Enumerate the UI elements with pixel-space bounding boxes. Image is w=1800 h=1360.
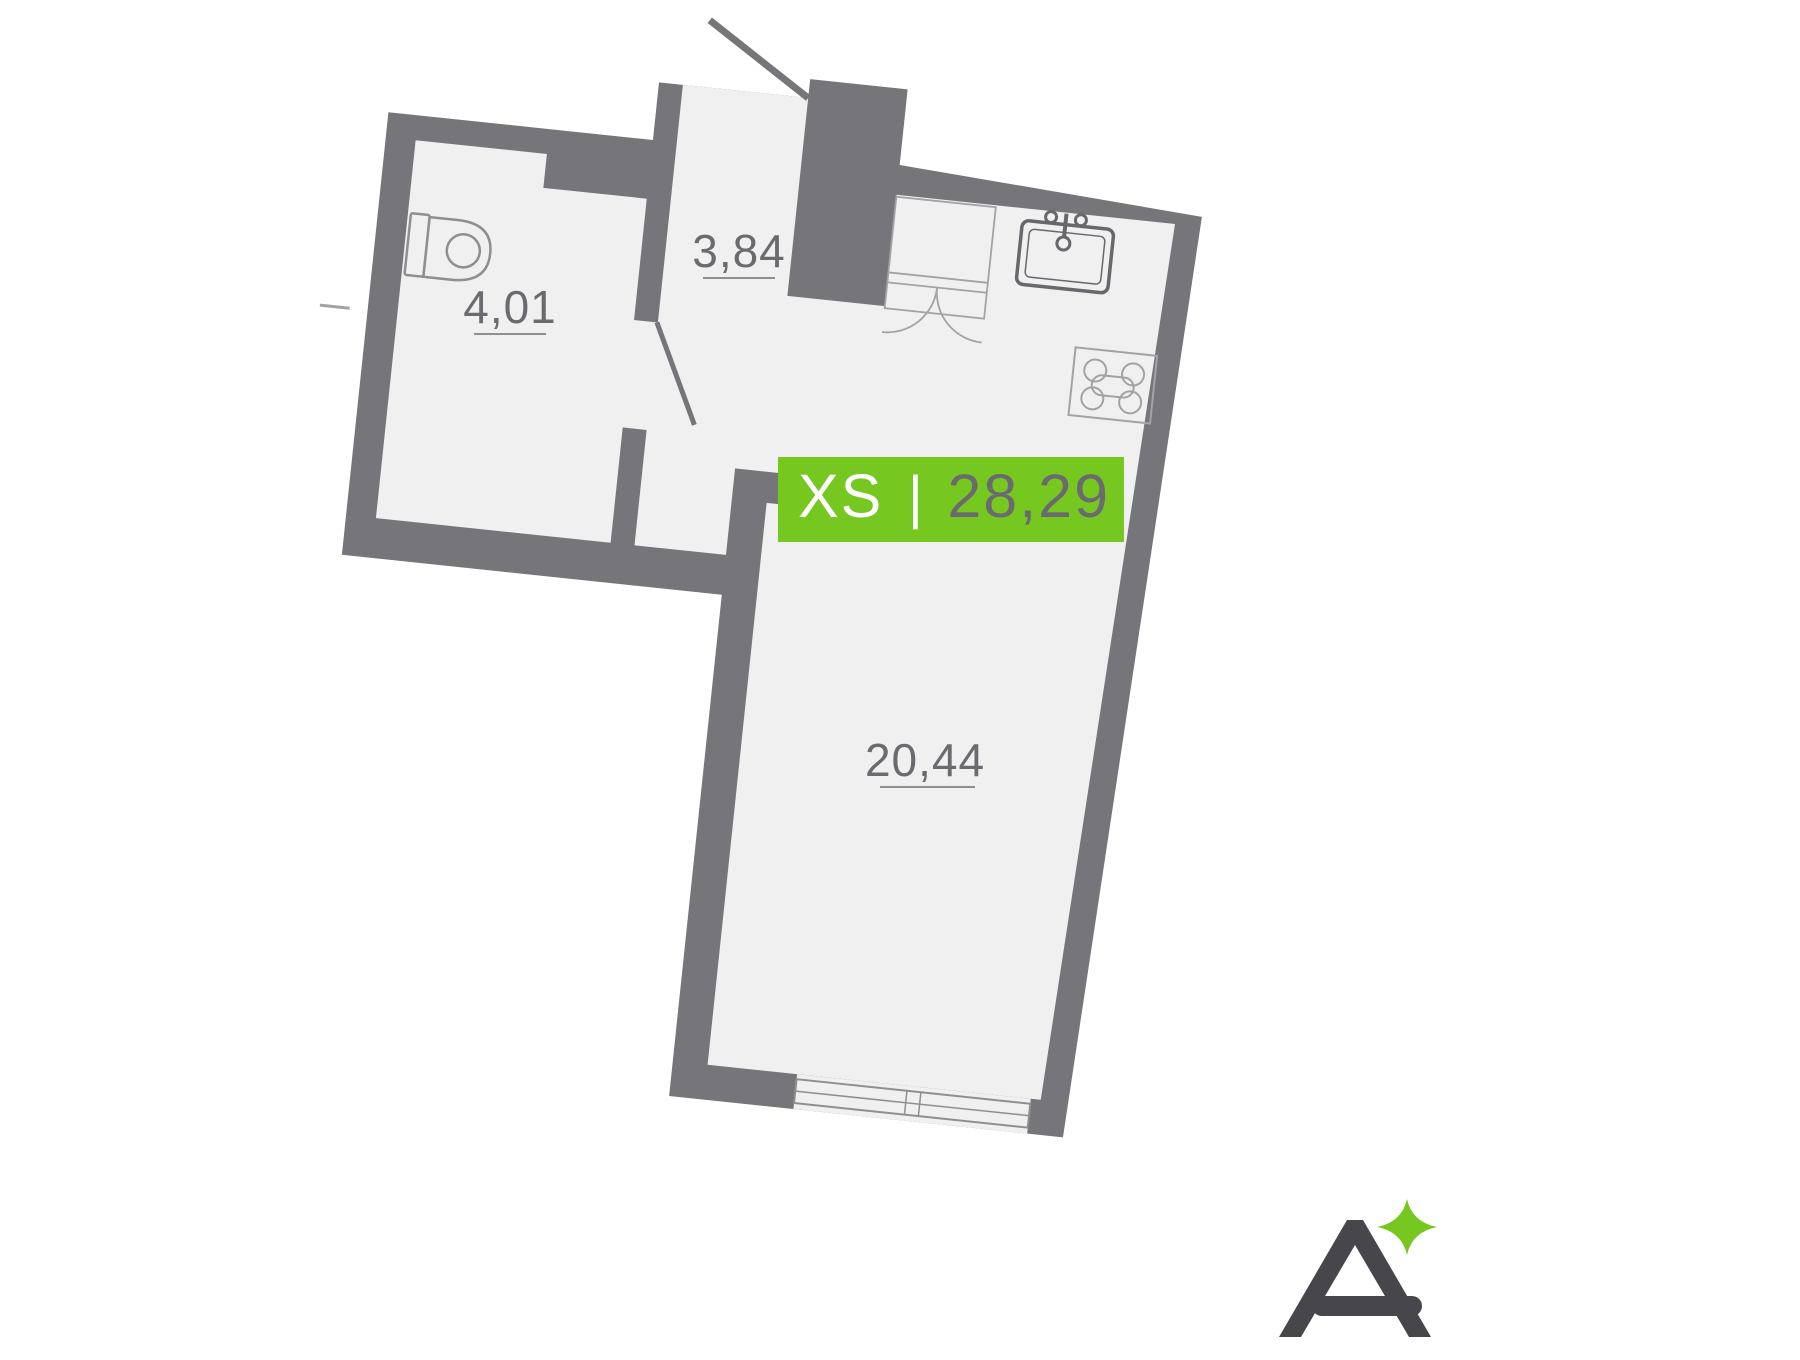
badge-type-label: XS xyxy=(798,462,883,530)
apartment-info-badge: XS | 28,29 xyxy=(778,457,1124,542)
logo-sparkle-icon xyxy=(1377,1199,1437,1255)
hallway-area-label: 3,84 xyxy=(692,225,786,277)
badge-separator: | xyxy=(908,465,923,530)
developer-logo xyxy=(1279,1199,1437,1337)
living-room-area-label: 20,44 xyxy=(865,734,985,786)
entry-door xyxy=(703,20,815,98)
logo-crossbar xyxy=(1312,1296,1422,1316)
floor-plan-canvas: 4,01 3,84 20,44 XS | 28,29 xyxy=(0,0,1800,1360)
badge-text: XS | 28,29 xyxy=(798,462,1110,530)
dimension-tick xyxy=(320,305,350,308)
floor-plan xyxy=(241,0,1217,1142)
badge-total-area: 28,29 xyxy=(947,462,1110,530)
floor-plan-page: 4,01 3,84 20,44 XS | 28,29 xyxy=(0,0,1800,1360)
bathroom-area-label: 4,01 xyxy=(463,281,557,333)
